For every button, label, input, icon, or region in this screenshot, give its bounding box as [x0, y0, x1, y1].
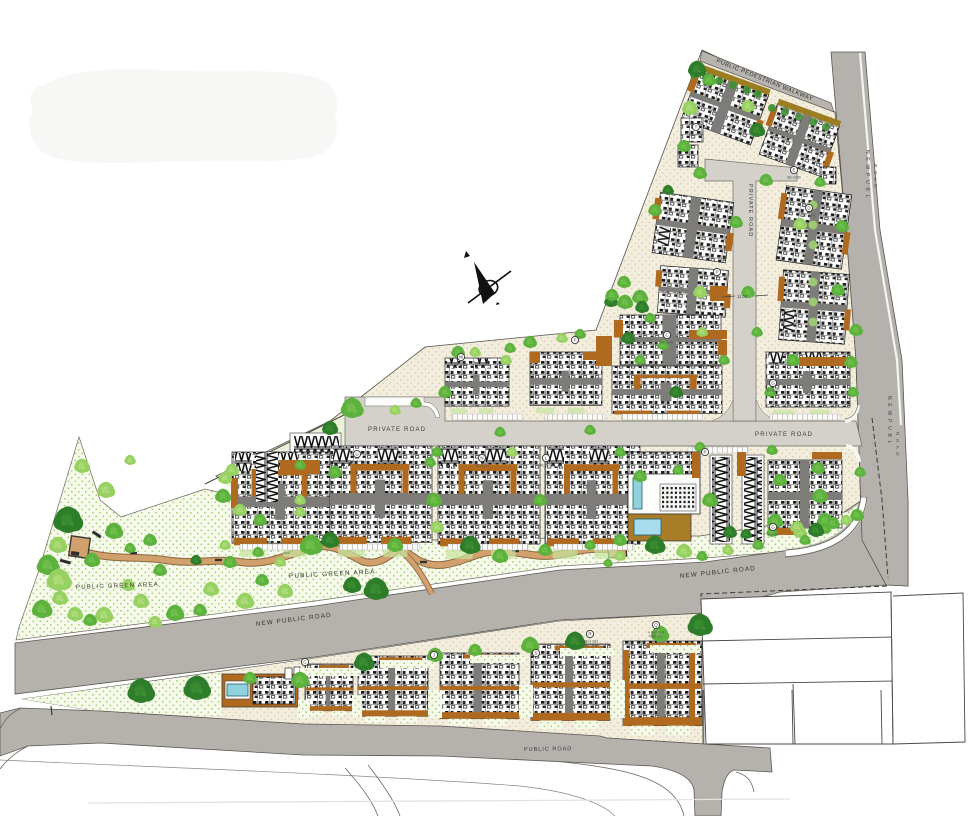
svg-text:8B Units: 8B Units — [660, 341, 674, 345]
svg-text:4 BB 8sd: 4 BB 8sd — [649, 635, 664, 639]
svg-text:PUBLIC ROAD: PUBLIC ROAD — [524, 746, 572, 753]
svg-text:9B Units: 9B Units — [454, 363, 468, 367]
svg-text:R O A D: R O A D — [895, 432, 900, 457]
svg-text:9B Units: 9B Units — [539, 464, 553, 468]
svg-text:P: P — [715, 270, 718, 275]
svg-text:Q: Q — [654, 623, 658, 628]
svg-text:PRIVATE ROAD: PRIVATE ROAD — [747, 184, 753, 237]
svg-text:T: T — [695, 125, 698, 130]
svg-text:9B Units: 9B Units — [802, 214, 816, 218]
svg-text:G: G — [771, 381, 775, 386]
svg-text:N: N — [480, 456, 483, 461]
svg-text:E: E — [792, 168, 795, 173]
svg-text:9B Units: 9B Units — [766, 389, 780, 393]
svg-text:PRIVATE ROAD: PRIVATE ROAD — [368, 427, 426, 433]
svg-text:11.00: 11.00 — [737, 294, 748, 299]
svg-text:F: F — [574, 338, 577, 343]
svg-text:4 BB 8sd: 4 BB 8sd — [583, 644, 598, 648]
svg-text:6B Units: 6B Units — [787, 176, 801, 180]
svg-text:6B Units: 6B Units — [689, 133, 703, 137]
svg-text:PRIVATE ROAD: PRIVATE ROAD — [755, 432, 813, 438]
svg-text:9B Units: 9B Units — [475, 464, 489, 468]
svg-text:J: J — [433, 653, 435, 658]
svg-text:G: G — [771, 525, 775, 530]
svg-text:N E W P U B L: N E W P U B L — [864, 150, 870, 199]
svg-text:8 Units: 8 Units — [767, 533, 778, 537]
svg-text:P: P — [703, 450, 706, 455]
svg-text:U: U — [355, 452, 358, 457]
svg-text:N E W P U B L: N E W P U B L — [886, 396, 892, 445]
svg-text:9B Units: 9B Units — [350, 460, 364, 464]
svg-text:S: S — [534, 651, 537, 656]
svg-text:R O A D: R O A D — [873, 164, 878, 189]
